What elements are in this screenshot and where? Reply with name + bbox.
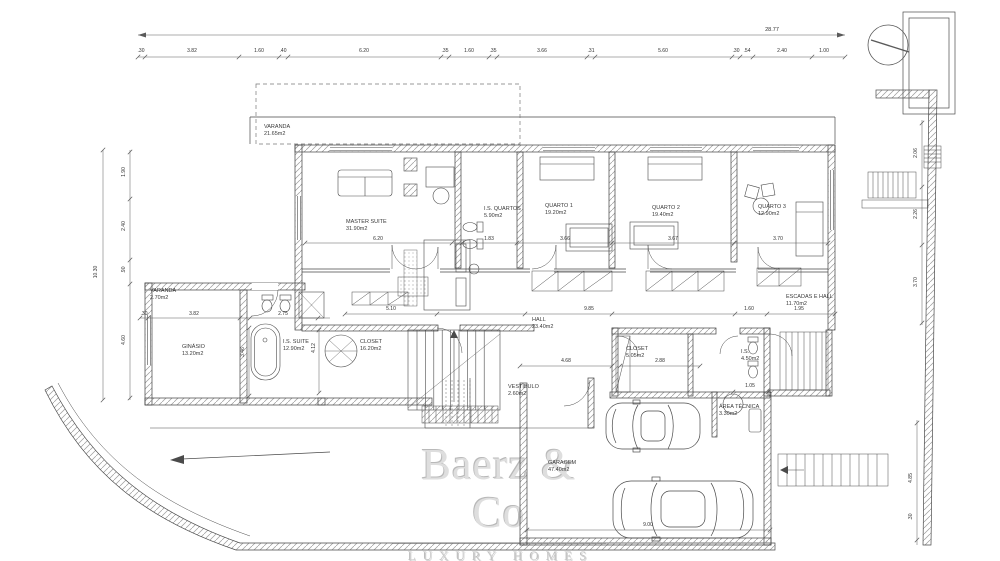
stairs-escadas [780, 332, 828, 390]
car-top-icon [606, 400, 700, 452]
car-bottom-icon [613, 477, 753, 541]
floor-plan-drawing [0, 0, 1000, 561]
stairs-exterior-bottom [778, 454, 888, 486]
stairs-entry [422, 406, 498, 423]
site-boundary [45, 12, 955, 550]
floor-plan-page: Baerz & Co LUXURY HOMES [0, 0, 1000, 561]
terrace-lines [250, 84, 835, 144]
walls [145, 145, 835, 545]
